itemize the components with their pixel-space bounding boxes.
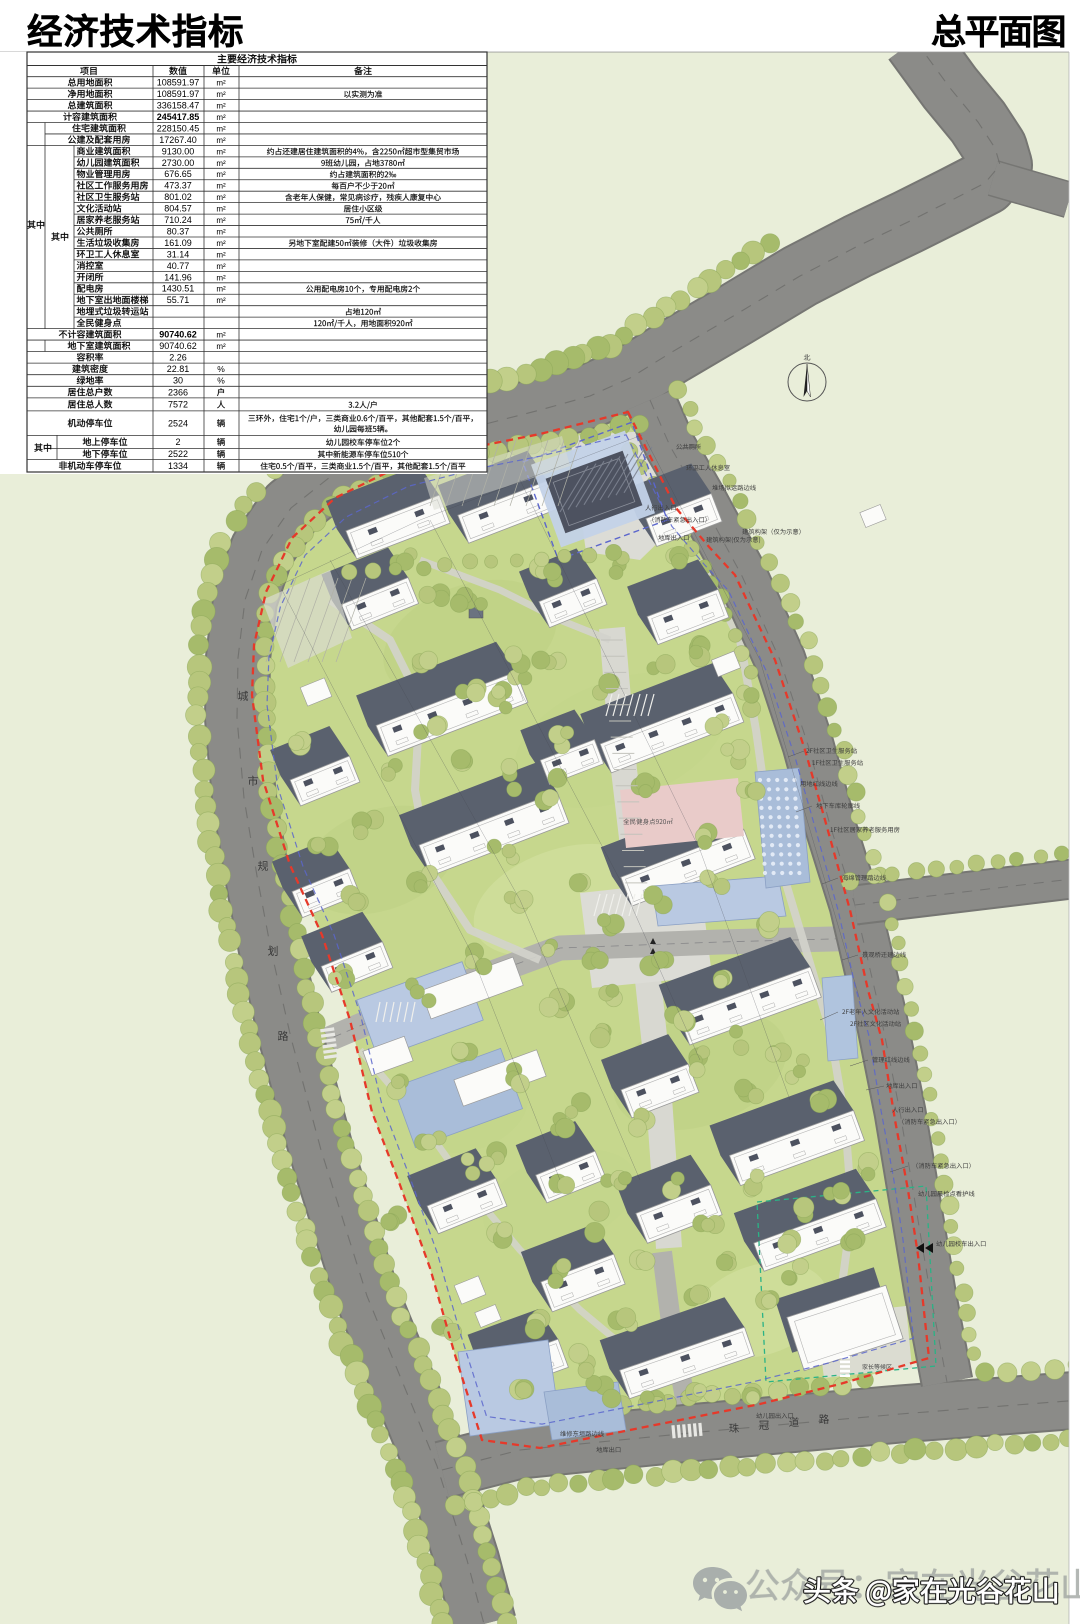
svg-text:1430.51: 1430.51	[162, 284, 195, 294]
svg-text:m²: m²	[216, 193, 226, 202]
svg-text:31.14: 31.14	[167, 249, 190, 259]
svg-text:108591.97: 108591.97	[157, 78, 200, 88]
svg-text:2.26: 2.26	[169, 353, 187, 363]
svg-text:m²: m²	[216, 205, 226, 214]
svg-text:m²: m²	[216, 90, 226, 99]
svg-text:336158.47: 336158.47	[157, 101, 200, 111]
svg-text:108591.97: 108591.97	[157, 89, 200, 99]
svg-text:801.02: 801.02	[164, 192, 192, 202]
svg-text:m²: m²	[216, 285, 226, 294]
svg-text:22.81: 22.81	[167, 364, 190, 374]
svg-text:161.09: 161.09	[164, 238, 192, 248]
svg-text:m²: m²	[216, 102, 226, 111]
svg-text:m²: m²	[216, 147, 226, 156]
svg-text:m²: m²	[216, 296, 226, 305]
svg-text:m²: m²	[216, 182, 226, 191]
svg-text:245417.85: 245417.85	[157, 112, 200, 122]
svg-text:2730.00: 2730.00	[162, 158, 195, 168]
svg-text:m²: m²	[216, 227, 226, 236]
svg-text:m²: m²	[216, 239, 226, 248]
svg-text:m²: m²	[216, 250, 226, 259]
svg-text:%: %	[217, 364, 225, 374]
svg-text:2: 2	[175, 437, 180, 447]
svg-text:40.77: 40.77	[167, 261, 190, 271]
svg-text:2522: 2522	[168, 449, 188, 459]
svg-text:m²: m²	[216, 159, 226, 168]
svg-text:710.24: 710.24	[164, 215, 192, 225]
svg-text:m²: m²	[216, 136, 226, 145]
svg-text:m²: m²	[216, 170, 226, 179]
svg-text:1334: 1334	[168, 461, 188, 471]
svg-text:55.71: 55.71	[167, 295, 190, 305]
svg-text:228150.45: 228150.45	[157, 123, 200, 133]
svg-text:m²: m²	[216, 331, 226, 340]
svg-text:7572: 7572	[168, 400, 188, 410]
svg-text:30: 30	[173, 376, 183, 386]
svg-text:80.37: 80.37	[167, 226, 190, 236]
svg-text:473.37: 473.37	[164, 181, 192, 191]
svg-text:676.65: 676.65	[164, 169, 192, 179]
svg-text:90740.62: 90740.62	[159, 341, 197, 351]
svg-text:m²: m²	[216, 113, 226, 122]
svg-text:m²: m²	[216, 273, 226, 282]
svg-text:17267.40: 17267.40	[159, 135, 197, 145]
svg-text:90740.62: 90740.62	[159, 330, 197, 340]
svg-text:m²: m²	[216, 124, 226, 133]
svg-text:141.96: 141.96	[164, 272, 192, 282]
svg-text:2366: 2366	[168, 387, 188, 397]
svg-text:m²: m²	[216, 262, 226, 271]
svg-text:2524: 2524	[168, 418, 188, 428]
svg-text:m²: m²	[216, 216, 226, 225]
svg-text:m²: m²	[216, 342, 226, 351]
svg-text:%: %	[217, 376, 225, 386]
svg-text:9130.00: 9130.00	[162, 146, 195, 156]
svg-text:m²: m²	[216, 79, 226, 88]
svg-text:804.57: 804.57	[164, 204, 192, 214]
